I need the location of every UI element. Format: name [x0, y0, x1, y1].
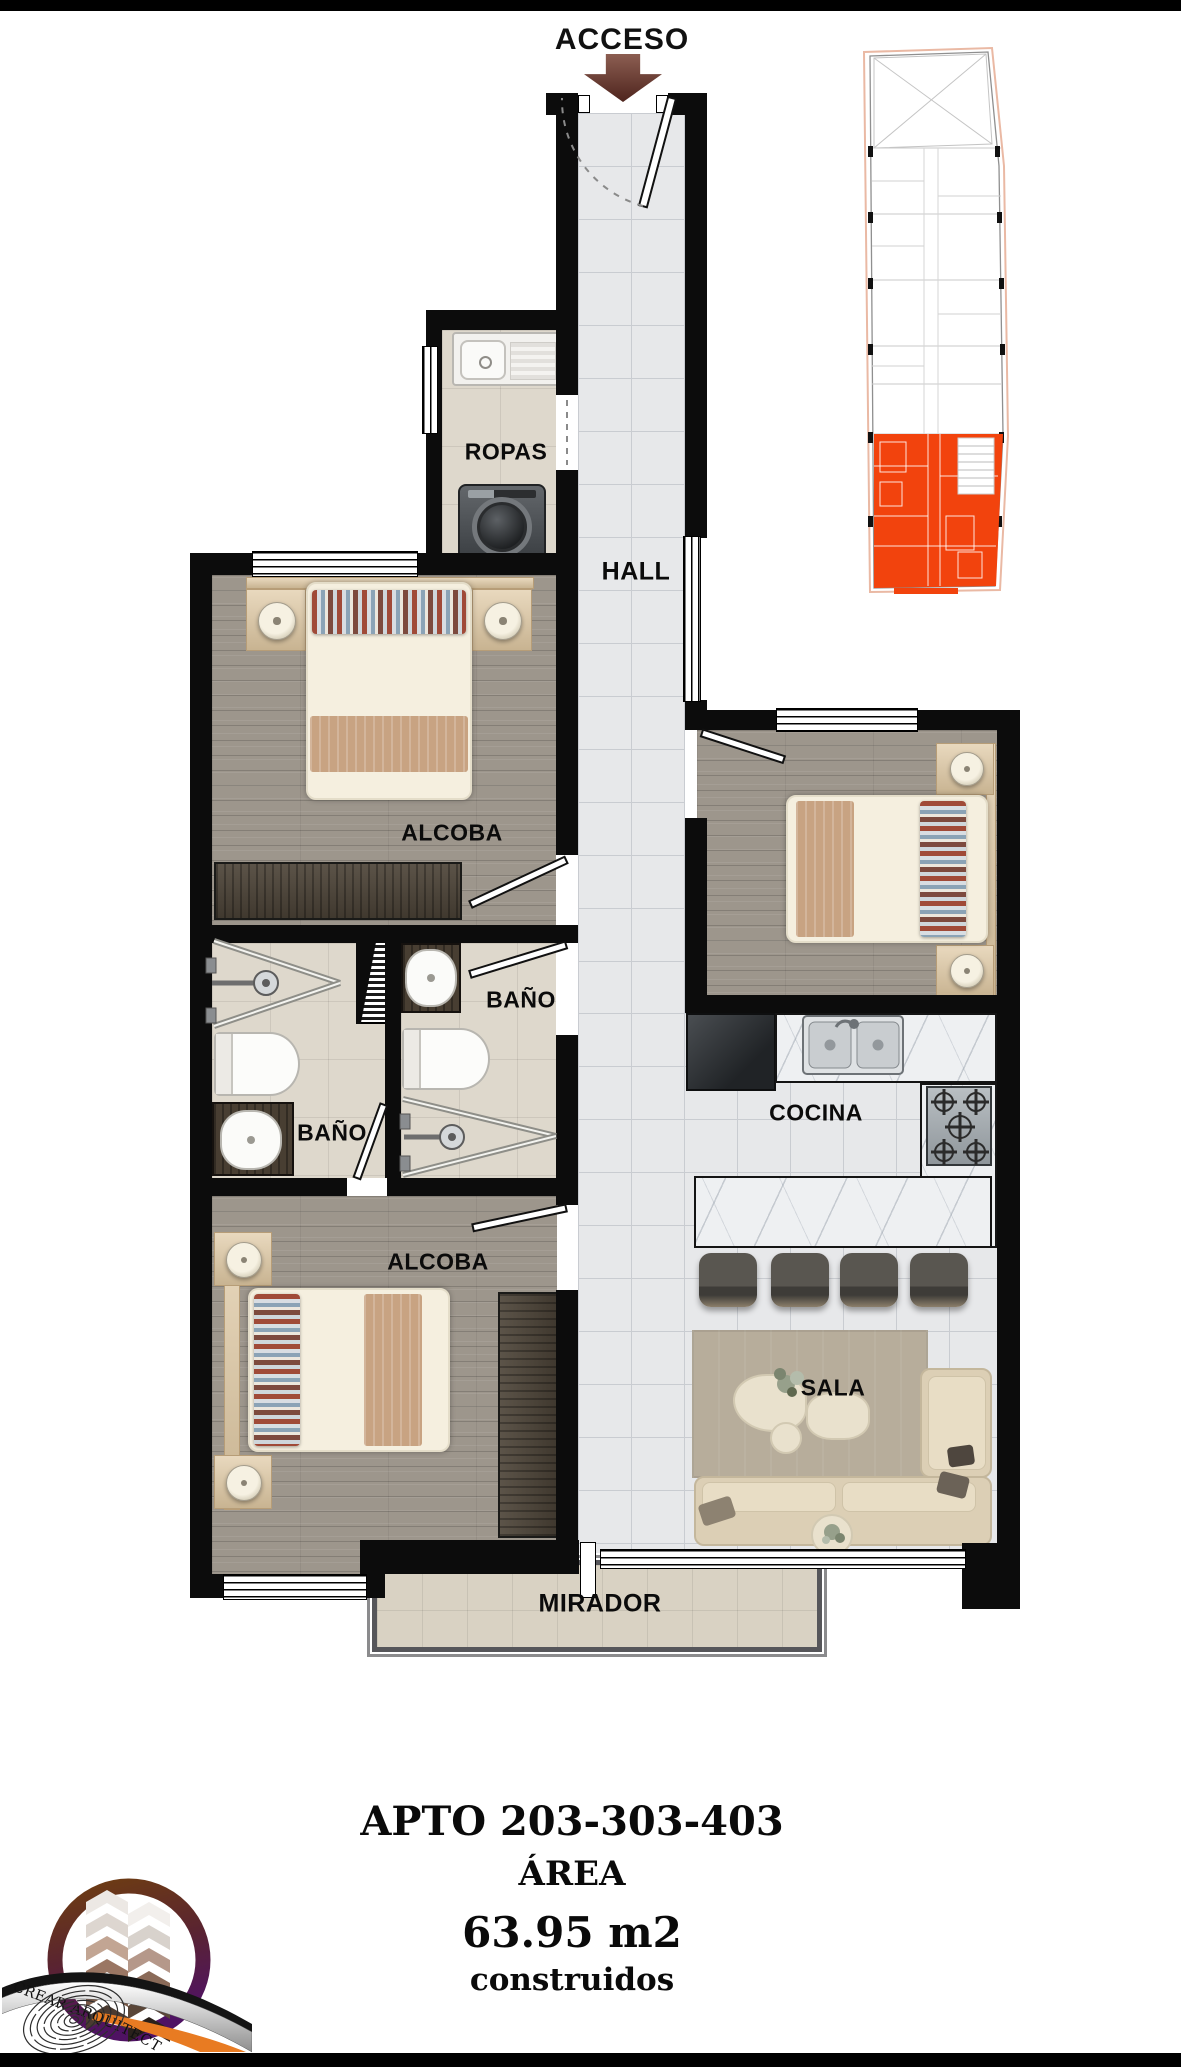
bed1-blanket — [310, 716, 468, 772]
wall — [685, 995, 1020, 1013]
bed1-lamp-left — [258, 602, 296, 640]
key-plan-highlighted-unit — [874, 434, 1003, 588]
logo-fingerprint — [15, 1973, 134, 2053]
logo-text: CREAR ARQUITECTURA — [2, 1852, 164, 2053]
bar-stool — [840, 1253, 898, 1307]
wall — [190, 1178, 347, 1196]
cooktop — [926, 1086, 992, 1166]
entry-door-post — [578, 95, 590, 113]
wall — [556, 470, 578, 855]
washing-machine — [458, 484, 546, 562]
bed2-lamp-top — [226, 1242, 262, 1278]
bed2-pillows — [254, 1294, 300, 1446]
bed3-pillows — [920, 801, 966, 937]
wall — [190, 925, 578, 943]
room-label-ropas: ROPAS — [465, 439, 548, 466]
top-border-bar — [0, 0, 1181, 11]
key-plan-terrace — [874, 54, 992, 148]
room-label-sala: SALA — [801, 1375, 866, 1402]
company-logo: CREAR ARQUITECTURA — [2, 1852, 252, 2053]
bedroom2-wardrobe — [498, 1292, 558, 1538]
room-label-mirador: MIRADOR — [539, 1590, 662, 1619]
apartment-title: APTO 203-303-403 — [360, 1798, 783, 1845]
bottom-border-bar — [0, 2053, 1181, 2067]
area-label: ÁREA — [519, 1854, 626, 1894]
bed1-pillows — [312, 590, 466, 634]
bar-stool — [910, 1253, 968, 1307]
kitchen-counter-top — [775, 1013, 997, 1083]
wall — [190, 553, 212, 1598]
throw-pillow — [947, 1444, 976, 1467]
area-value: 63.95 m2 — [462, 1908, 682, 1957]
wall — [685, 818, 707, 1013]
key-plan-unit-lines — [874, 434, 998, 586]
wall — [387, 1178, 578, 1196]
bed3-blanket — [796, 801, 854, 937]
access-arrow-icon — [584, 54, 662, 102]
room-label-hall: HALL — [602, 558, 671, 587]
wall — [428, 310, 578, 330]
kitchen-island — [694, 1176, 992, 1248]
wall — [365, 1574, 385, 1598]
side-stool — [770, 1422, 802, 1454]
bed2-lamp-bottom — [226, 1465, 262, 1501]
bed2-blanket — [364, 1294, 422, 1446]
access-label: ACCESO — [555, 23, 689, 57]
key-plan-columns — [868, 146, 1005, 527]
washer-drum — [472, 497, 532, 557]
wall — [997, 710, 1020, 1609]
bathroom2-toilet — [402, 1028, 490, 1090]
bathroom1-toilet — [214, 1032, 300, 1096]
bedroom1-dresser — [214, 862, 462, 920]
wall — [190, 1574, 227, 1598]
room-label-bano-hall: BAÑO — [486, 987, 556, 1014]
floor-plan-sheet: ACCESO — [0, 0, 1181, 2067]
window — [252, 551, 418, 577]
area-note: construidos — [470, 1962, 674, 1998]
bar-stool — [699, 1253, 757, 1307]
wall — [385, 943, 401, 1178]
window — [776, 708, 918, 732]
wall — [556, 93, 578, 395]
room-label-alcoba-top: ALCOBA — [401, 820, 502, 847]
bathroom1-sink — [220, 1110, 282, 1170]
logo-ring — [55, 1886, 203, 2034]
bed1-lamp-right — [484, 602, 522, 640]
bed3-lamp-bottom — [950, 954, 984, 988]
room-label-cocina: COCINA — [769, 1100, 863, 1127]
window — [223, 1574, 367, 1600]
bar-stool — [771, 1253, 829, 1307]
key-plan-balcony-tab — [894, 588, 958, 594]
wall — [360, 1540, 579, 1574]
wall — [556, 1290, 578, 1574]
room-label-alcoba-bottom: ALCOBA — [387, 1249, 488, 1276]
window — [422, 346, 438, 434]
window — [683, 536, 701, 702]
bathroom2-sink — [405, 949, 457, 1007]
wall — [685, 93, 707, 538]
key-plan-floors — [872, 148, 1003, 434]
laundry-sink-drainboard — [510, 342, 556, 380]
laundry-sink-bowl — [460, 340, 506, 380]
bed3-lamp-top — [950, 752, 984, 786]
logo-building-chevrons — [86, 1890, 170, 2042]
room-label-bano-interior: BAÑO — [297, 1120, 367, 1147]
logo-swoosh-steel — [2, 1982, 252, 2052]
key-plan — [858, 46, 1016, 594]
key-plan-stairs — [958, 438, 994, 494]
logo-swoosh-orange — [92, 2012, 246, 2052]
window — [600, 1549, 966, 1569]
entry-door-post — [656, 95, 668, 113]
laundry-sink — [452, 332, 564, 386]
refrigerator — [686, 1013, 776, 1091]
logo-swoosh-black — [2, 1972, 252, 2032]
